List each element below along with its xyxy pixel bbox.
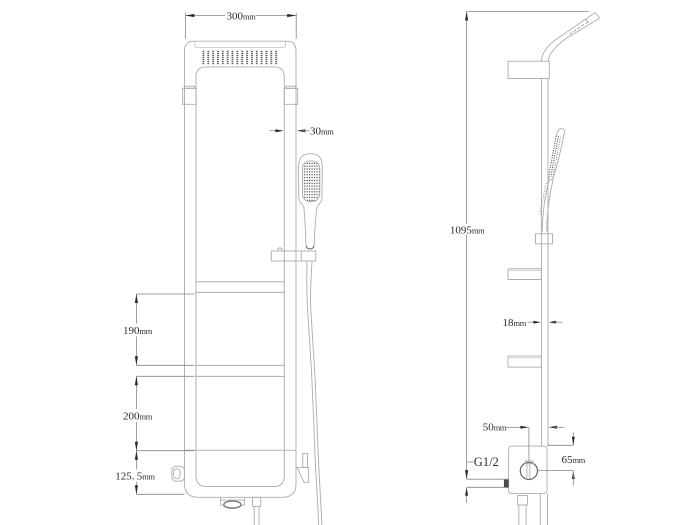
- svg-text:200mm: 200mm: [123, 411, 153, 423]
- svg-text:18mm: 18mm: [503, 317, 527, 329]
- svg-text:50mm: 50mm: [483, 422, 507, 434]
- svg-text:300mm: 300mm: [227, 10, 257, 22]
- svg-text:1095mm: 1095mm: [450, 224, 485, 236]
- svg-text:190mm: 190mm: [123, 325, 153, 337]
- svg-text:65mm: 65mm: [562, 454, 586, 466]
- svg-text:G1/2: G1/2: [474, 455, 499, 469]
- svg-text:30mm: 30mm: [310, 126, 334, 138]
